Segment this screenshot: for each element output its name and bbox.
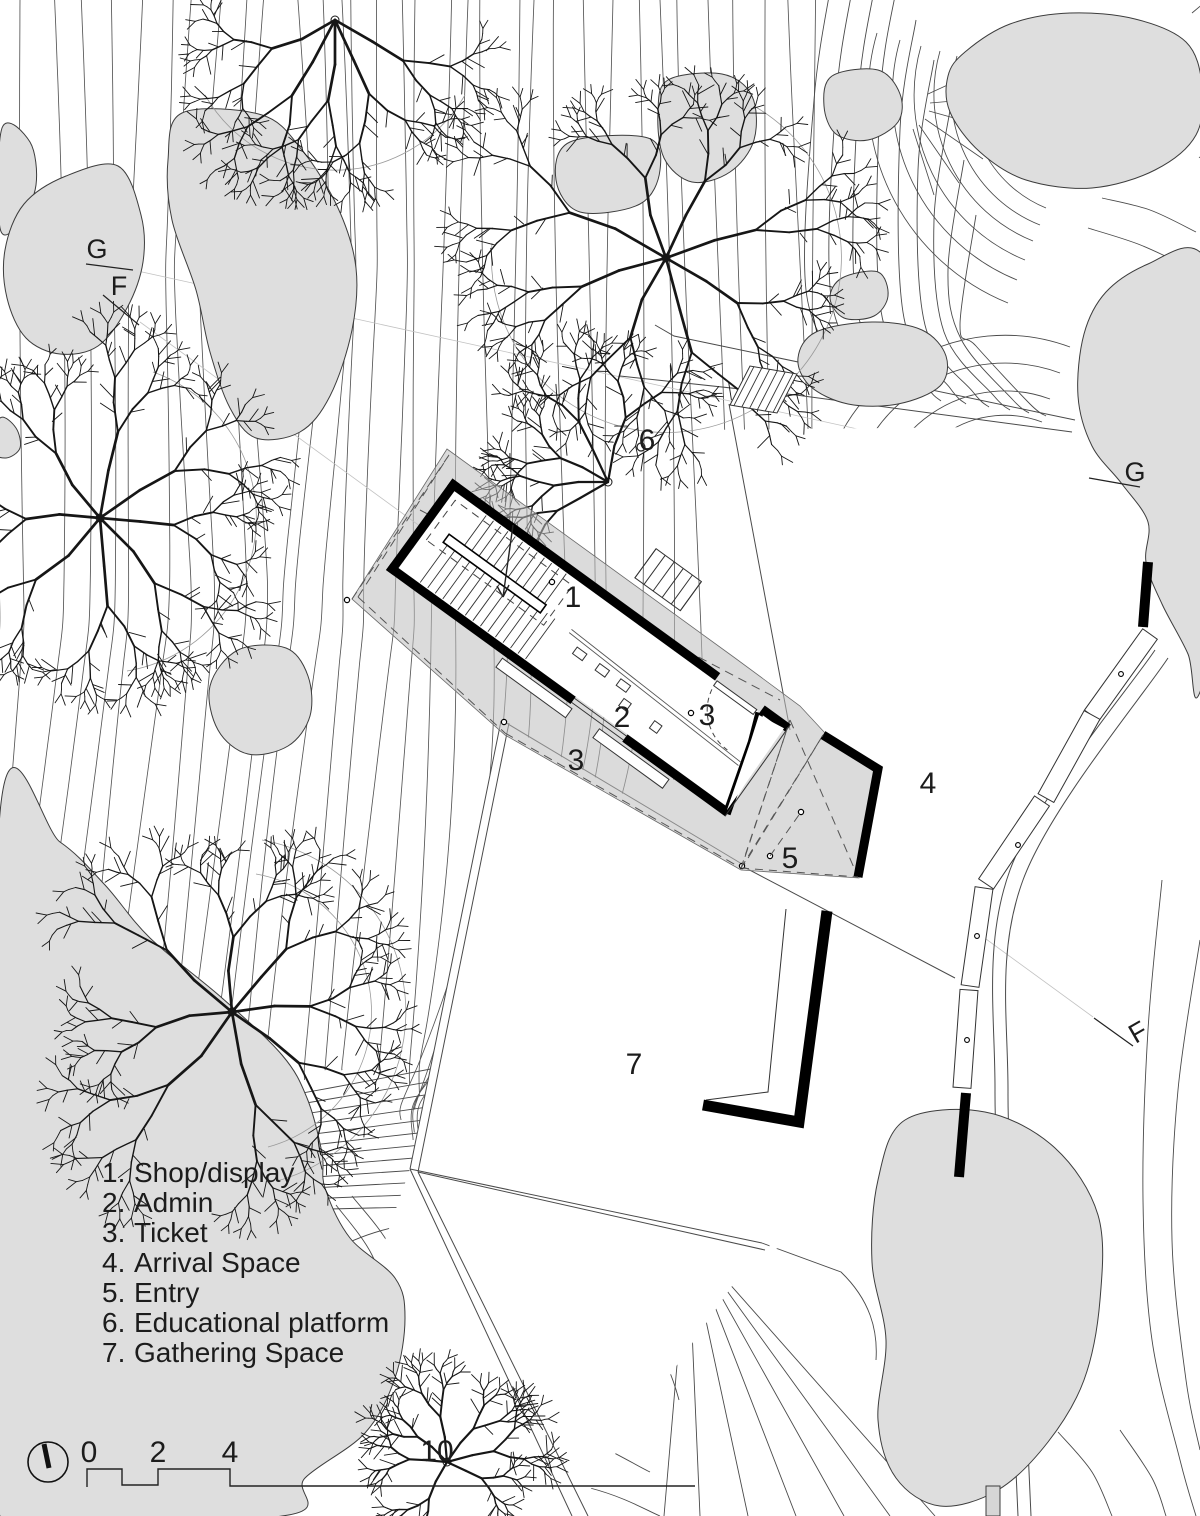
svg-text:2.: 2. [102,1187,125,1218]
svg-text:Shop/display: Shop/display [134,1157,294,1188]
svg-text:Gathering Space: Gathering Space [134,1337,344,1368]
svg-text:10: 10 [420,1435,453,1468]
svg-text:3: 3 [568,744,585,777]
svg-text:Admin: Admin [134,1187,213,1218]
svg-text:1: 1 [565,581,582,614]
svg-text:G: G [1124,457,1145,487]
svg-text:Ticket: Ticket [134,1217,208,1248]
svg-text:Arrival Space: Arrival Space [134,1247,301,1278]
svg-text:2: 2 [614,701,631,734]
svg-text:3.: 3. [102,1217,125,1248]
svg-text:7.: 7. [102,1337,125,1368]
svg-text:G: G [86,234,107,264]
svg-text:5.: 5. [102,1277,125,1308]
svg-text:4.: 4. [102,1247,125,1278]
svg-text:1.: 1. [102,1157,125,1188]
svg-text:7: 7 [626,1048,643,1081]
svg-text:6: 6 [639,424,656,457]
svg-text:6.: 6. [102,1307,125,1338]
svg-text:F: F [111,271,128,301]
svg-text:Entry: Entry [134,1277,199,1308]
svg-text:3: 3 [699,699,716,732]
svg-text:0: 0 [81,1436,98,1469]
svg-text:4: 4 [222,1436,239,1469]
svg-text:Educational platform: Educational platform [134,1307,389,1338]
svg-text:4: 4 [920,767,937,800]
svg-text:2: 2 [150,1436,167,1469]
svg-text:5: 5 [782,842,799,875]
